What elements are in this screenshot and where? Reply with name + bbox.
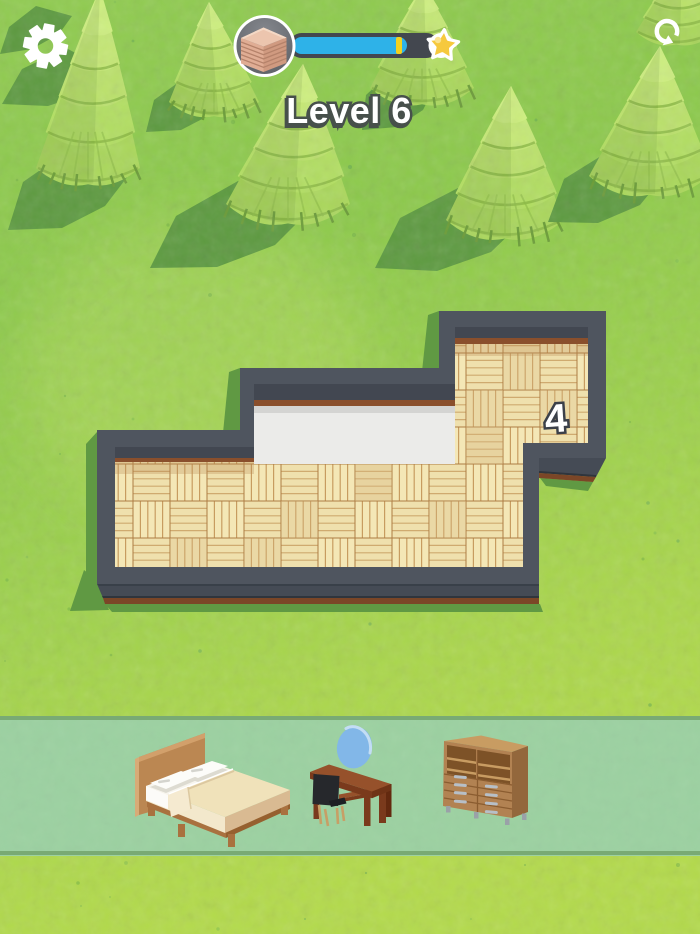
svg-text:4: 4	[543, 396, 569, 441]
svg-text:Level 6: Level 6	[286, 90, 412, 131]
